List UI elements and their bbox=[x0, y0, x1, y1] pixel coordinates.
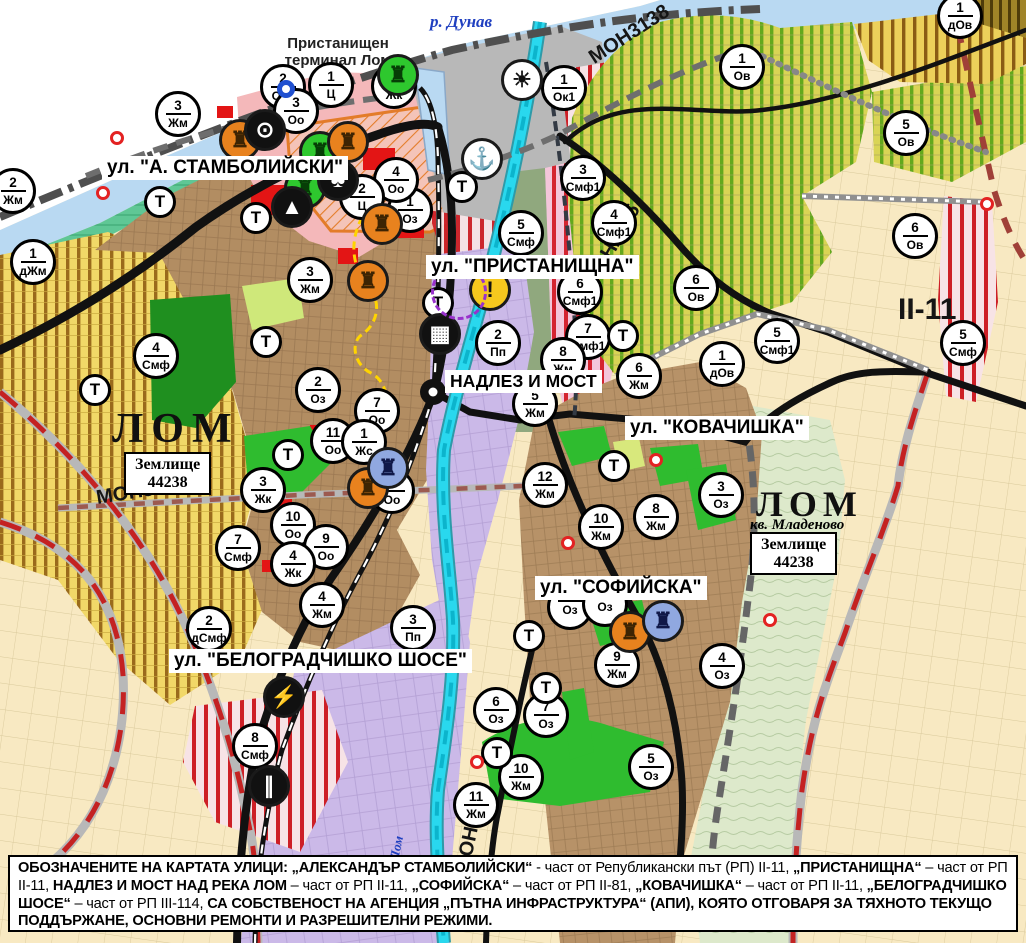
street-label-kovachishka: ул. "КОВАЧИШКА" bbox=[625, 416, 809, 440]
road-label-ii-11: II-11 bbox=[898, 293, 956, 327]
zemlishte-number: 44238 bbox=[148, 474, 188, 491]
danube-river-label: р. Дунав bbox=[430, 12, 492, 32]
street-label-belogradchishko: ул. "БЕЛОГРАДЧИШКО ШОСЕ" bbox=[169, 649, 472, 673]
legend-text: ОБОЗНАЧЕНИТЕ НА КАРТАТА УЛИЦИ: „АЛЕКСАНД… bbox=[18, 860, 1008, 929]
city-label-lom-west: ЛОМ bbox=[112, 405, 240, 453]
street-label-stamboliyski: ул. "А. СТАМБОЛИЙСКИ" bbox=[102, 156, 348, 180]
zoning-map: ул. "А. СТАМБОЛИЙСКИ" ул. "ПРИСТАНИЩНА" … bbox=[0, 0, 1026, 943]
street-label-nadlez-i-most: НАДЛЕЗ И МОСТ bbox=[445, 370, 602, 393]
zemlishte-box-west: Землище 44238 bbox=[124, 452, 211, 495]
port-terminal-label: Пристанищен терминал Лом bbox=[268, 36, 408, 69]
zemlishte-number: 44238 bbox=[774, 554, 814, 571]
zemlishte-box-east: Землище 44238 bbox=[750, 532, 837, 575]
street-label-pristanishtna: ул. "ПРИСТАНИЩНА" bbox=[426, 255, 639, 279]
legend-note: ОБОЗНАЧЕНИТЕ НА КАРТАТА УЛИЦИ: „АЛЕКСАНД… bbox=[8, 855, 1018, 932]
zemlishte-word: Землище bbox=[135, 456, 200, 473]
street-label-sofiyska: ул. "СОФИЙСКА" bbox=[535, 576, 707, 600]
zemlishte-word: Землище bbox=[761, 536, 826, 553]
